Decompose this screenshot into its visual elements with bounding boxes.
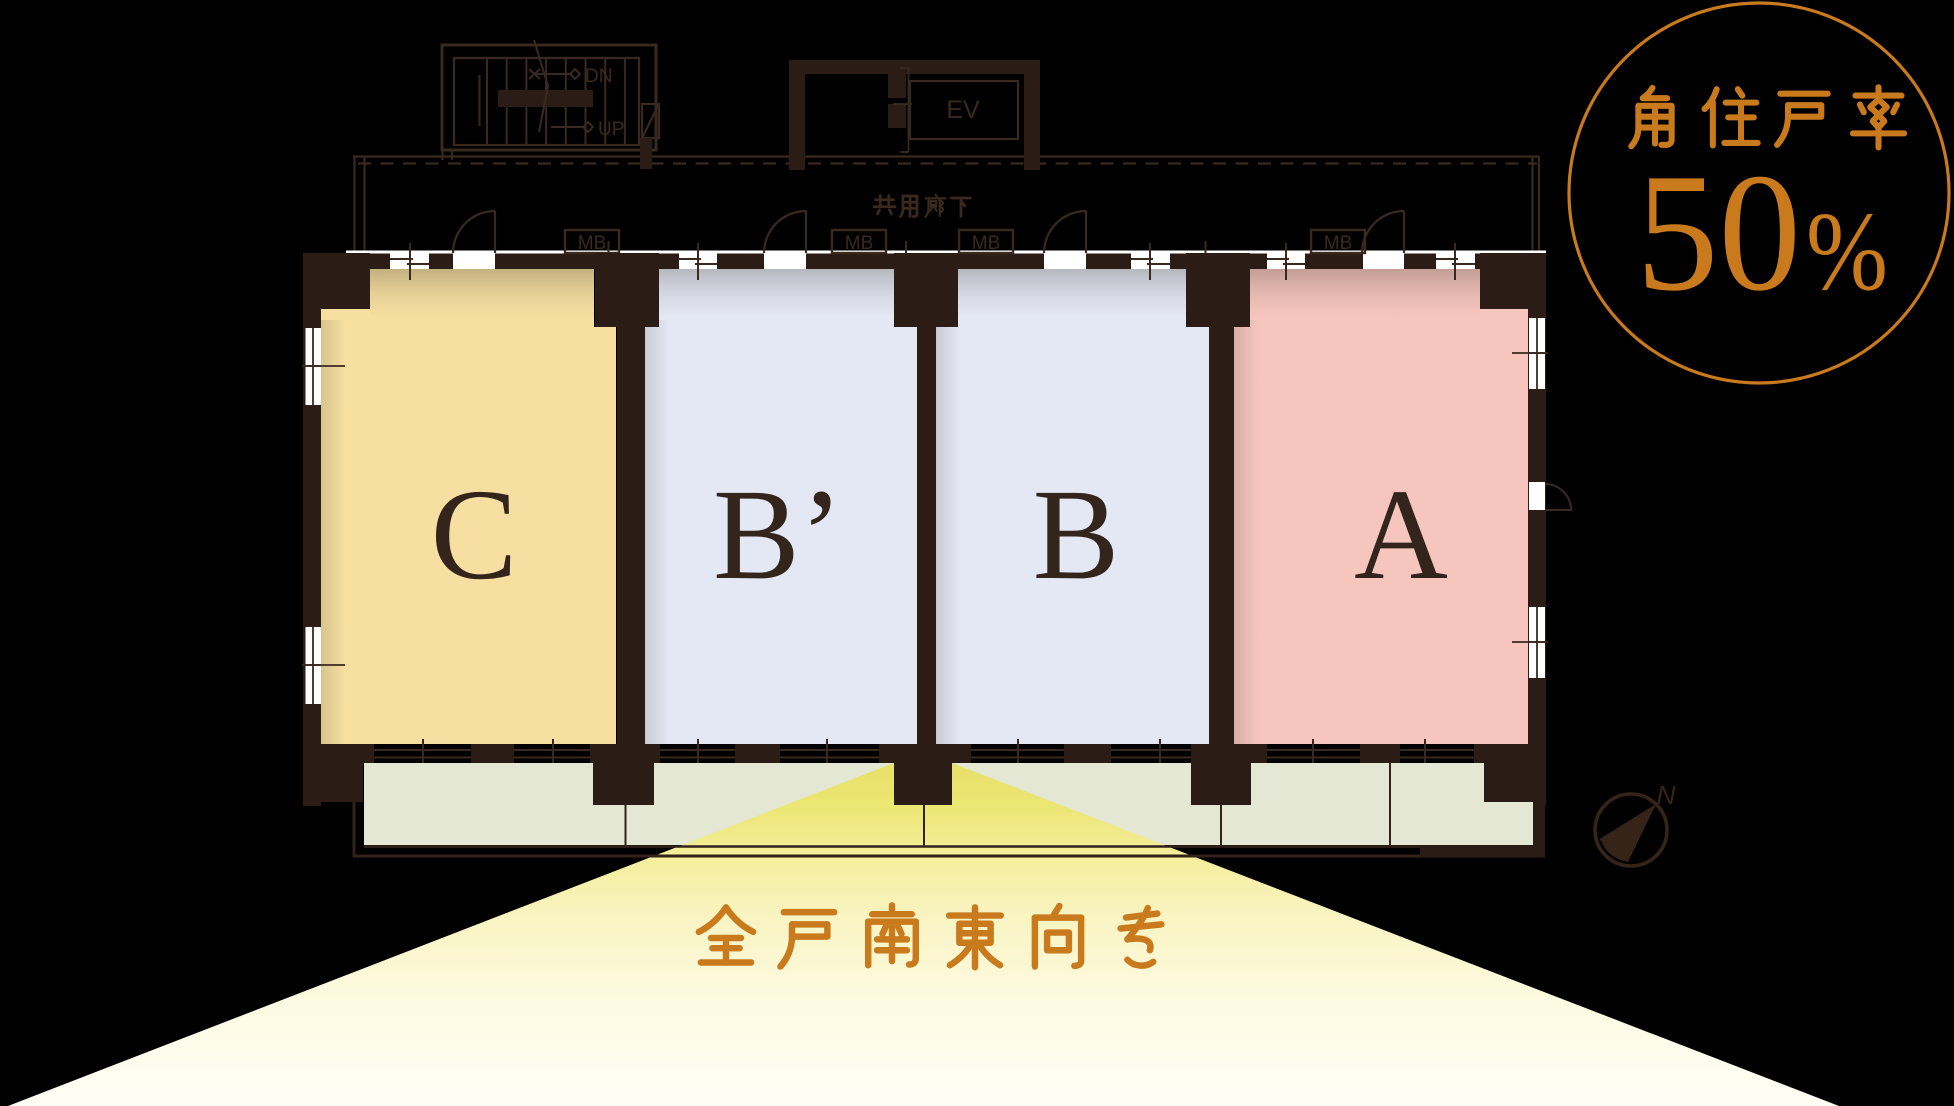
svg-text:B’: B’ [713,463,843,607]
svg-text:50: 50 [1636,138,1801,326]
svg-text:EV: EV [946,96,980,124]
svg-text:B: B [1033,463,1120,607]
svg-text:N: N [1657,780,1676,810]
svg-text:MB: MB [972,233,1001,254]
svg-text:MB: MB [578,233,607,254]
svg-text:MB: MB [845,233,874,254]
svg-text:%: % [1806,190,1888,314]
svg-text:DN: DN [585,66,612,87]
svg-text:A: A [1354,463,1448,607]
svg-text:C: C [431,463,518,607]
svg-text:UP: UP [598,119,624,140]
svg-text:MB: MB [1324,233,1353,254]
